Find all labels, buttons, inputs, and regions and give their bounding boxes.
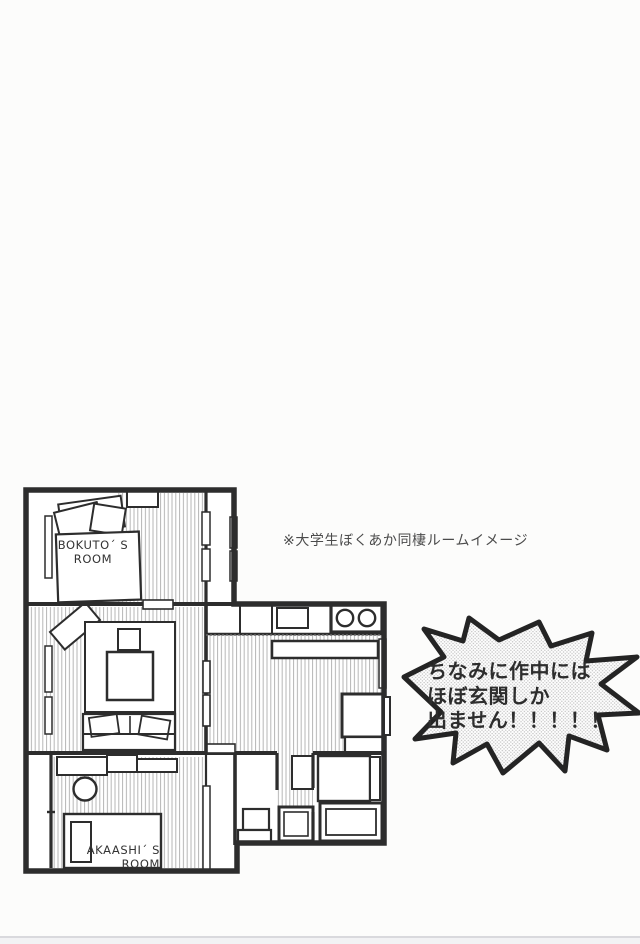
burner-icon: [337, 610, 353, 626]
scan-footer-strip: [0, 938, 640, 944]
sliding-door: [203, 695, 210, 726]
bath-vanity: [318, 756, 370, 801]
bokuto-room-label-line1: BOKUTO´ S: [56, 538, 130, 552]
caption-text: ※大学生ぼくあか同棲ルームイメージ: [283, 530, 528, 550]
bar-counter: [272, 641, 378, 658]
door: [207, 744, 235, 753]
closet-door: [202, 549, 210, 581]
pillow: [90, 504, 126, 536]
akaashi-room-label-line2: ROOM: [86, 857, 160, 871]
desk: [57, 757, 107, 775]
akaashi-room-label-line1: AKAASHI´ S: [86, 843, 160, 857]
window: [45, 516, 52, 578]
headboard-shelf: [127, 491, 158, 507]
bubble-line-3: 出ません！！！！！: [427, 708, 611, 733]
bubble-text: ちなみに作中には ほぼ玄関しか 出ません！！！！！: [427, 659, 611, 733]
burner-icon: [359, 610, 375, 626]
window: [45, 697, 52, 734]
floor-plan-drawing: [0, 0, 640, 944]
hall-basin: [292, 756, 313, 789]
toilet-tank: [243, 809, 269, 830]
bokuto-room-label-line2: ROOM: [56, 552, 130, 566]
floor-cushion: [118, 629, 140, 650]
scanned-page: ※大学生ぼくあか同棲ルームイメージ BOKUTO´ S ROOM AKAASHI…: [0, 0, 640, 944]
low-table: [107, 652, 153, 700]
window: [45, 646, 52, 692]
bubble-line-1: ちなみに作中には: [427, 659, 611, 684]
stool: [74, 778, 97, 801]
shelf: [107, 755, 137, 772]
sink: [277, 608, 308, 628]
akaashi-room-label: AKAASHI´ S ROOM: [86, 843, 160, 871]
closet-door: [202, 512, 210, 545]
closet-door: [203, 786, 210, 872]
shelf: [137, 759, 177, 772]
bubble-line-2: ほぼ玄関しか: [427, 684, 611, 709]
sliding-door: [203, 661, 210, 693]
sofa-cushion: [138, 716, 170, 740]
toilet-base: [238, 830, 271, 842]
door: [143, 600, 173, 609]
fridge-nub: [384, 697, 390, 735]
bokuto-room-label: BOKUTO´ S ROOM: [56, 538, 130, 566]
fridge: [342, 694, 384, 737]
fridge-lower: [345, 737, 383, 753]
